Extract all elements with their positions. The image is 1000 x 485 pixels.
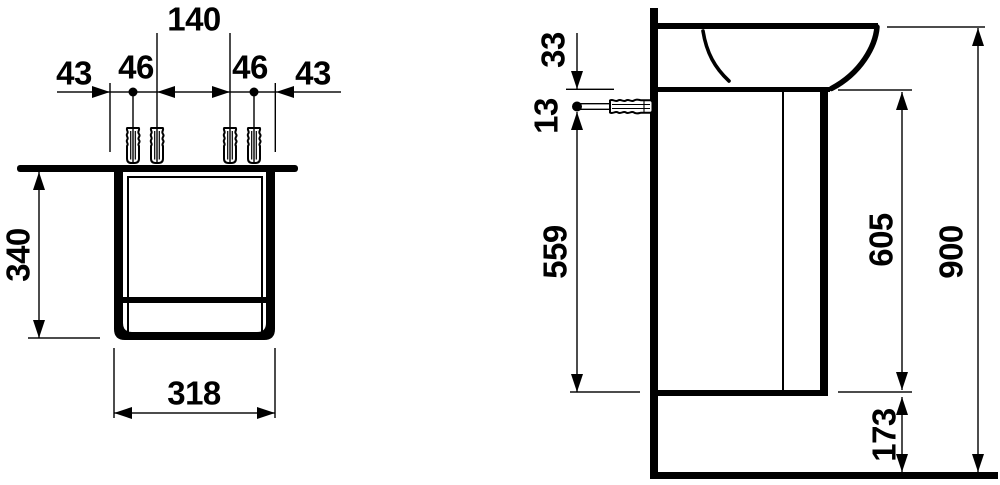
side-view: 33 13 559 605 900 173 <box>528 8 999 479</box>
drawing-canvas: 43 46 140 46 43 340 318 <box>0 0 1000 485</box>
dimension-line-340 <box>38 171 39 338</box>
dim-label-318: 318 <box>167 375 221 412</box>
washbasin-front-profile <box>832 27 878 89</box>
console-top-panel <box>17 165 298 172</box>
dim-label-46-right: 46 <box>232 49 268 86</box>
dim-label-559: 559 <box>537 225 574 279</box>
extension-line-318-left <box>113 348 114 418</box>
dim-label-173: 173 <box>866 408 903 462</box>
dim-label-140: 140 <box>167 1 221 38</box>
arrowhead-33-bottom <box>571 71 583 89</box>
mounting-screw-shank <box>577 104 612 110</box>
dimension-line-605 <box>901 92 902 390</box>
cabinet-door-front <box>820 92 828 396</box>
bolt-reference-dot-right <box>250 88 259 97</box>
dim-label-900: 900 <box>933 225 970 279</box>
extension-line-basin-underside-right <box>838 89 912 90</box>
dim-label-46-left: 46 <box>118 49 154 86</box>
arrowhead-605-bottom <box>896 372 908 390</box>
cabinet-bottom <box>656 390 828 396</box>
dim-label-340: 340 <box>0 228 37 282</box>
cabinet-outline <box>114 172 275 340</box>
extension-line-318-right <box>274 348 275 418</box>
arrowhead-559-bottom <box>571 374 583 392</box>
door-top-edge <box>128 176 262 178</box>
arrowhead-900-bottom <box>972 454 984 472</box>
floor-line <box>650 472 998 479</box>
bolt-reference-dot-left <box>129 88 138 97</box>
washbasin-rim <box>656 23 878 29</box>
screw-reference-dot <box>572 102 582 112</box>
bolt-centerline-1 <box>132 92 133 164</box>
arrowhead-340-top <box>33 172 45 190</box>
extension-line-right-edge <box>275 83 276 152</box>
washbasin-bowl-curve <box>703 31 729 81</box>
plinth-divider <box>123 297 266 303</box>
arrowhead-900-top <box>972 28 984 46</box>
door-gap-line-right <box>261 176 263 332</box>
extension-line-left-edge <box>109 83 110 152</box>
door-gap-line-left <box>127 176 129 332</box>
dim-label-605: 605 <box>863 213 900 267</box>
arrowhead-605-top <box>896 92 908 110</box>
extension-line-cabinet-bottom-right <box>838 391 912 392</box>
bolt-centerline-4 <box>253 92 254 164</box>
technical-drawing: 43 46 140 46 43 340 318 <box>0 0 1000 485</box>
washbasin-underside <box>656 87 830 92</box>
arrowhead-340-bottom <box>33 320 45 338</box>
extension-line-basin-underside-left <box>566 89 614 90</box>
arrowhead-140-right <box>212 86 230 98</box>
cabinet-front-edge <box>782 92 784 392</box>
extension-line-cabinet-bottom-left <box>570 391 640 392</box>
dim-label-33: 33 <box>535 32 572 68</box>
mounting-screw-body <box>610 100 653 114</box>
dim-label-43-left: 43 <box>56 55 92 92</box>
extension-line-340-bottom <box>28 337 100 338</box>
dimension-line-318 <box>114 412 275 413</box>
arrowhead-43-right <box>276 86 294 98</box>
dim-label-43-right: 43 <box>295 55 331 92</box>
dim-label-13: 13 <box>528 98 565 134</box>
bolt-centerline-2 <box>156 33 157 164</box>
bolt-centerline-3 <box>229 33 230 164</box>
front-view: 43 46 140 46 43 340 318 <box>0 1 341 420</box>
arrowhead-318-left <box>114 407 132 419</box>
extension-line-rim-top <box>887 26 985 27</box>
dimension-line-900 <box>977 28 978 472</box>
arrowhead-140-left <box>157 86 175 98</box>
arrowhead-318-right <box>257 407 275 419</box>
arrowhead-43-left <box>92 86 110 98</box>
dimension-line-559 <box>576 112 577 392</box>
wall-line <box>650 8 658 473</box>
